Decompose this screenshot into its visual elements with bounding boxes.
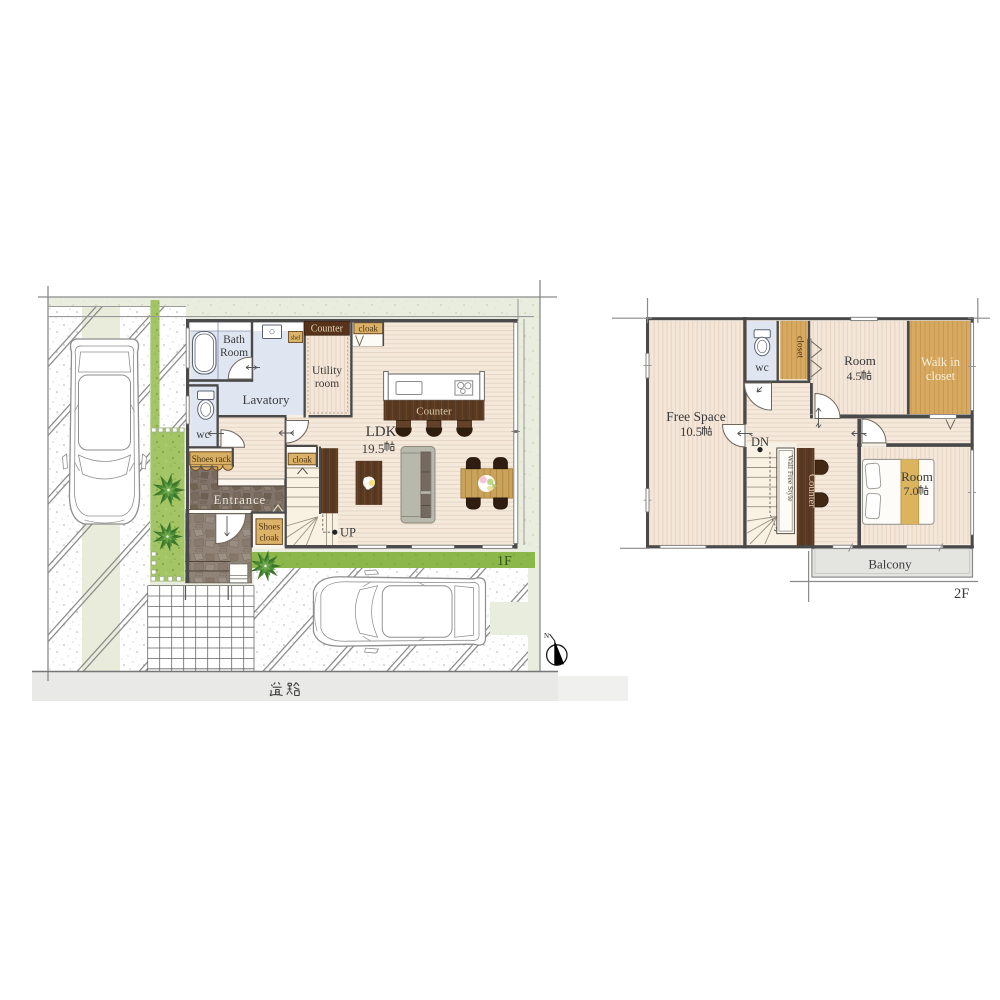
- svg-text:Utility: Utility: [312, 365, 342, 377]
- svg-text:cloak: cloak: [259, 533, 279, 543]
- svg-text:UP: UP: [340, 526, 356, 540]
- svg-text:4.5: 4.5: [847, 369, 862, 383]
- svg-text:Entrance: Entrance: [214, 493, 266, 507]
- svg-text:10.5: 10.5: [680, 425, 702, 439]
- svg-text:Wall Free Style: Wall Free Style: [786, 455, 795, 502]
- svg-text:shel: shel: [291, 336, 301, 342]
- svg-text:Bath: Bath: [223, 334, 245, 346]
- svg-text:Room: Room: [901, 469, 933, 484]
- svg-text:Counter: Counter: [311, 324, 344, 335]
- svg-text:wc: wc: [196, 429, 209, 441]
- svg-text:19.5: 19.5: [362, 441, 385, 456]
- svg-text:Lavatory: Lavatory: [243, 392, 290, 407]
- svg-text:Shoes: Shoes: [258, 522, 280, 532]
- svg-text:Room: Room: [844, 353, 876, 368]
- svg-text:N: N: [544, 632, 549, 640]
- svg-text:Counter: Counter: [416, 406, 452, 418]
- svg-text:LDK: LDK: [366, 424, 397, 440]
- svg-text:cloak: cloak: [292, 454, 312, 464]
- svg-text:Shoes rack: Shoes rack: [192, 454, 232, 464]
- svg-text:2F: 2F: [954, 586, 969, 602]
- svg-text:Room: Room: [220, 347, 248, 359]
- svg-text:Free Space: Free Space: [666, 409, 726, 424]
- svg-text:cloak: cloak: [359, 324, 379, 334]
- svg-text:DN: DN: [751, 435, 769, 449]
- svg-text:room: room: [315, 378, 339, 390]
- svg-text:closet: closet: [926, 369, 956, 383]
- svg-text:Walk in: Walk in: [921, 355, 961, 369]
- svg-text:closet: closet: [795, 336, 805, 359]
- svg-text:1F: 1F: [497, 554, 512, 569]
- svg-text:Balcony: Balcony: [868, 557, 912, 572]
- svg-text:7.0: 7.0: [904, 484, 919, 498]
- svg-text:wc: wc: [755, 362, 768, 374]
